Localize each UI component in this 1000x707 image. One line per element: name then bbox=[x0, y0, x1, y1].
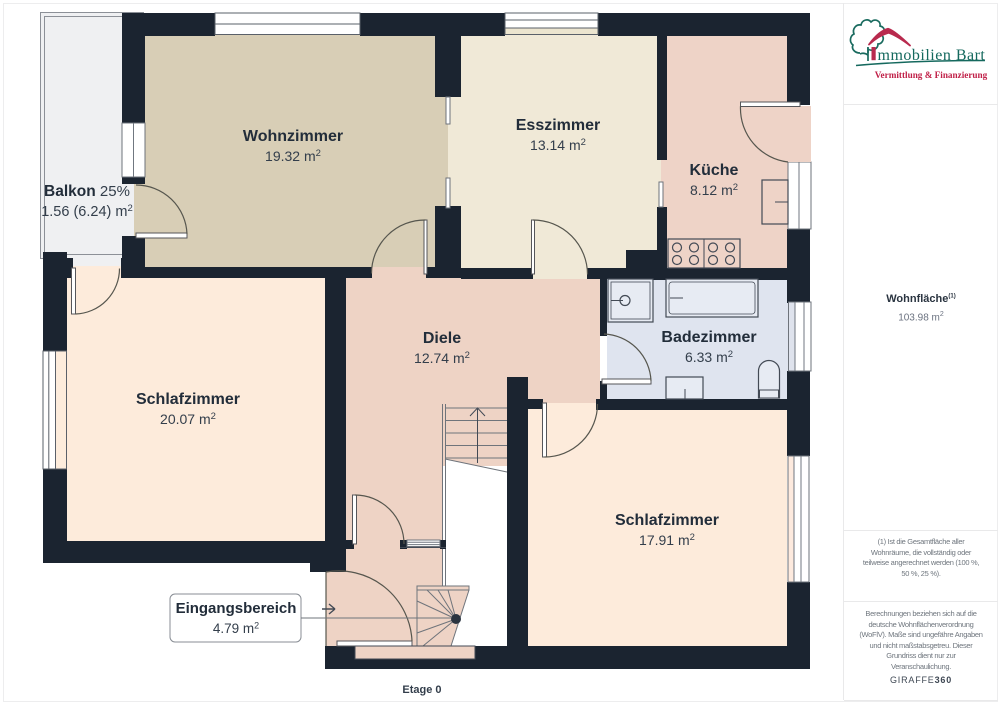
svg-text:Etage 0: Etage 0 bbox=[402, 684, 441, 696]
svg-text:Vermittlung & Finanzierung: Vermittlung & Finanzierung bbox=[875, 70, 988, 80]
svg-text:1.56 (6.24) m2: 1.56 (6.24) m2 bbox=[41, 203, 133, 220]
svg-text:Schlafzimmer: Schlafzimmer bbox=[136, 391, 240, 408]
svg-text:13.14 m2: 13.14 m2 bbox=[530, 137, 586, 153]
svg-text:4.79 m2: 4.79 m2 bbox=[213, 621, 259, 637]
svg-text:17.91 m2: 17.91 m2 bbox=[639, 532, 695, 548]
svg-text:Balkon 25%: Balkon 25% bbox=[44, 183, 130, 200]
svg-text:8.12 m2: 8.12 m2 bbox=[690, 182, 738, 198]
svg-text:Wohnzimmer: Wohnzimmer bbox=[243, 128, 343, 145]
svg-text:19.32 m2: 19.32 m2 bbox=[265, 148, 321, 164]
svg-text:Eingangsbereich: Eingangsbereich bbox=[176, 600, 297, 617]
svg-text:Badezimmer: Badezimmer bbox=[661, 329, 756, 346]
svg-text:Schlafzimmer: Schlafzimmer bbox=[615, 512, 719, 529]
svg-text:12.74 m2: 12.74 m2 bbox=[414, 350, 470, 366]
svg-text:6.33 m2: 6.33 m2 bbox=[685, 349, 733, 365]
svg-text:Küche: Küche bbox=[690, 162, 739, 179]
svg-text:Diele: Diele bbox=[423, 330, 461, 347]
svg-text:20.07 m2: 20.07 m2 bbox=[160, 411, 216, 427]
svg-text:Esszimmer: Esszimmer bbox=[516, 117, 601, 134]
